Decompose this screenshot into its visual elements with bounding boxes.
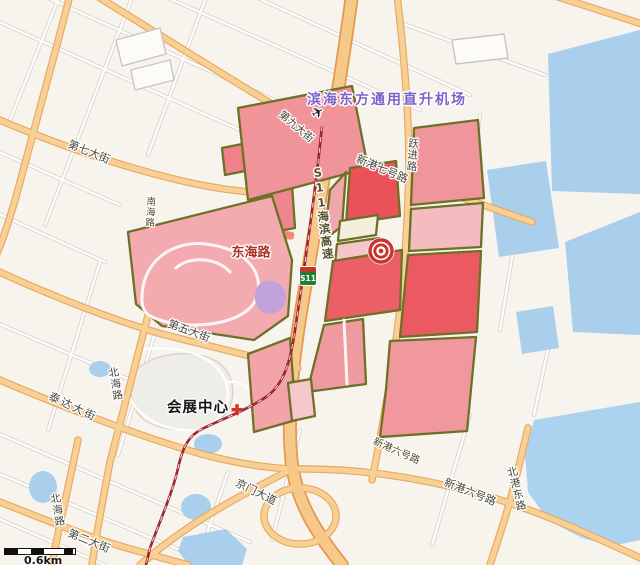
road-label-nanhai: 南海路 (143, 196, 154, 228)
road-label-donghai: 东海路 (231, 247, 270, 260)
poi-label-heliport[interactable]: 滨海东方通用直升机场 (307, 93, 467, 107)
poi-label-convention-center[interactable]: 会展中心 (167, 401, 229, 416)
scale-label: 0.6km (24, 554, 62, 565)
map-canvas[interactable]: 滨海东方通用直升机场 ✈ 第九大街 第七大街 新港七号路 跃进路 S11海滨高速… (0, 0, 640, 565)
road-label-yuejin: 跃进路 (406, 137, 419, 172)
target-marker[interactable] (368, 238, 395, 265)
expressway-badge-s11: S11 (299, 266, 317, 286)
map-graphics (0, 0, 640, 565)
badge-top-band (300, 267, 316, 272)
